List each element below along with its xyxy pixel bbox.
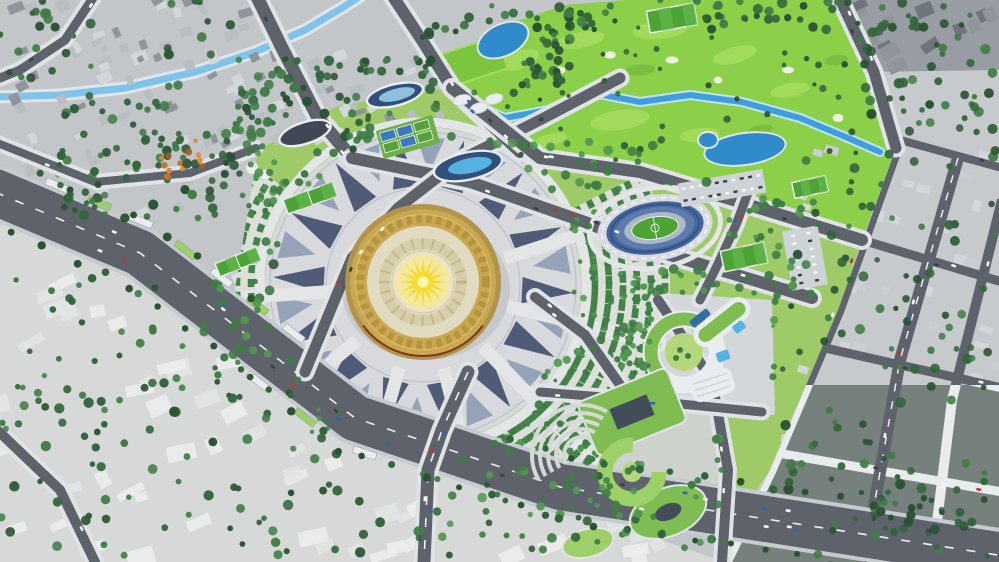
tree [553, 379, 557, 383]
boulevard-tree [667, 468, 674, 475]
tree [255, 150, 261, 156]
tree [493, 139, 502, 148]
tree [359, 530, 368, 539]
tree [362, 57, 369, 64]
tree [753, 235, 758, 240]
tree [577, 17, 587, 27]
tree [551, 32, 556, 37]
tree [146, 425, 154, 433]
tree [642, 328, 647, 333]
tree [950, 236, 960, 246]
tree [319, 487, 327, 495]
tree [383, 58, 389, 64]
tree [980, 478, 987, 485]
tree [6, 69, 12, 75]
tree [802, 156, 811, 165]
tree [501, 11, 510, 20]
tree [486, 471, 493, 478]
tree [508, 139, 517, 148]
tree [236, 504, 245, 513]
tree [825, 314, 832, 321]
tree [576, 515, 582, 521]
tree [256, 520, 262, 526]
boulevard-tree [266, 386, 272, 392]
tree [876, 507, 885, 516]
tree [396, 68, 404, 76]
tree [203, 131, 211, 139]
tree [268, 526, 277, 535]
tree [195, 152, 201, 158]
tree [240, 541, 246, 547]
tree [648, 141, 658, 151]
tree [286, 100, 293, 107]
tree [710, 282, 716, 288]
tree [852, 516, 857, 521]
tree [788, 281, 797, 290]
tree [707, 25, 716, 34]
tree [332, 485, 342, 495]
sand-bunker [604, 51, 616, 58]
tree [719, 467, 725, 473]
tree [251, 145, 257, 151]
tree [355, 119, 363, 127]
tree [240, 192, 246, 198]
tree [316, 407, 320, 411]
tree [335, 448, 342, 455]
tree [658, 267, 667, 276]
tree [611, 511, 617, 517]
tree [144, 106, 150, 112]
tree [793, 250, 803, 260]
tree [535, 400, 544, 409]
tree [574, 348, 582, 356]
tree [529, 141, 537, 149]
tree [988, 201, 994, 207]
tree [980, 44, 990, 54]
tree [652, 287, 662, 297]
tree [89, 100, 96, 107]
tree [633, 53, 637, 57]
tree [41, 441, 51, 451]
tree [947, 395, 956, 404]
tree [89, 198, 95, 204]
tree [569, 227, 573, 231]
tree [221, 129, 231, 139]
tree [602, 9, 609, 16]
tree [939, 44, 948, 53]
tree [249, 346, 257, 354]
tree [902, 295, 910, 303]
tree [235, 360, 240, 365]
tree [195, 215, 201, 221]
tree [630, 280, 636, 286]
tree [916, 483, 926, 493]
courtyard-tree [677, 347, 683, 353]
tree [712, 435, 721, 444]
tree [940, 3, 947, 10]
tree [585, 138, 593, 146]
tree [775, 243, 782, 250]
boulevard-tree [358, 453, 365, 460]
tree [130, 121, 136, 127]
tree [519, 81, 526, 88]
tree [274, 241, 281, 248]
tree [910, 157, 919, 166]
tree [727, 217, 733, 223]
tree [797, 16, 803, 22]
tree [326, 481, 332, 487]
tree [447, 520, 454, 527]
boulevard-tree [600, 461, 607, 468]
tree [254, 72, 262, 80]
tree [79, 210, 89, 220]
sand-bunker [665, 56, 678, 63]
tree [357, 66, 364, 73]
tree [944, 220, 954, 230]
tree [889, 215, 895, 221]
tree [386, 110, 392, 116]
boulevard-tree [543, 446, 549, 452]
tree [227, 525, 233, 531]
tree [220, 181, 228, 189]
tree [587, 497, 592, 502]
tree [86, 513, 92, 519]
tree [837, 462, 845, 470]
tree [113, 145, 120, 152]
tree [694, 477, 701, 484]
tree [538, 97, 542, 101]
tree [645, 301, 651, 307]
hedge-tree [640, 334, 644, 338]
tree [584, 183, 591, 190]
tree [236, 170, 243, 177]
tree [148, 379, 156, 387]
tree [849, 179, 854, 184]
tree [365, 123, 374, 132]
tree [983, 348, 992, 357]
tree [238, 89, 246, 97]
tree [169, 406, 179, 416]
tree [179, 384, 186, 391]
tree [460, 457, 467, 464]
tree [246, 203, 251, 208]
tree [71, 33, 76, 38]
tree [926, 118, 935, 127]
tree [693, 266, 702, 275]
tree [59, 148, 65, 154]
tree [136, 103, 143, 110]
tree [826, 407, 833, 414]
hedge-tree [619, 363, 625, 369]
tree [53, 497, 62, 506]
tree [425, 58, 434, 67]
tree [118, 328, 125, 335]
tree [310, 454, 319, 463]
boulevard-tree [37, 170, 44, 177]
tree [956, 124, 964, 132]
tree [269, 259, 279, 269]
tree [84, 200, 90, 206]
tree [601, 52, 606, 57]
tree [962, 459, 971, 468]
tree [249, 114, 255, 120]
tree [904, 517, 914, 527]
tree [486, 17, 493, 24]
tree [509, 89, 517, 97]
tree [151, 284, 158, 291]
tree [142, 135, 151, 144]
tree [606, 483, 613, 490]
tree [937, 548, 943, 554]
tree [754, 13, 760, 19]
hedge-tree [577, 445, 583, 451]
boulevard-tree [590, 523, 598, 531]
tree [917, 503, 923, 509]
tree [197, 157, 203, 163]
tree [217, 285, 225, 293]
tree [791, 276, 797, 282]
tree [642, 294, 649, 301]
tree [782, 50, 788, 56]
tree [548, 185, 556, 193]
tree [866, 109, 876, 119]
tree [377, 67, 386, 76]
tree [524, 165, 532, 173]
tree [248, 88, 256, 96]
tree [41, 403, 49, 411]
tree [564, 8, 574, 18]
tree [554, 2, 564, 12]
tree [988, 68, 998, 78]
tree [628, 319, 636, 327]
tree [859, 202, 867, 210]
tree [719, 19, 728, 28]
tree [61, 204, 68, 211]
tree [246, 150, 252, 156]
tree [579, 151, 585, 157]
tree [614, 356, 620, 362]
tree [855, 324, 865, 334]
tree [953, 486, 960, 493]
tree [26, 73, 35, 82]
tree [967, 12, 972, 17]
tree [204, 18, 211, 25]
tree [590, 162, 597, 169]
tree [919, 22, 928, 31]
tree [853, 150, 858, 155]
tree [874, 257, 880, 263]
tree [264, 80, 274, 90]
tree [273, 550, 282, 559]
tree [167, 0, 175, 8]
tree [966, 59, 974, 67]
tree [197, 32, 207, 42]
tree [714, 500, 722, 508]
tree [90, 167, 99, 176]
tree [173, 374, 181, 382]
tree [858, 271, 868, 281]
tree [608, 349, 614, 355]
tree [981, 384, 987, 390]
boulevard-tree [238, 366, 244, 372]
sand-bunker [782, 67, 794, 74]
tree [247, 125, 255, 133]
tree [20, 401, 29, 410]
tree [571, 533, 580, 542]
tree [771, 364, 777, 370]
tree [576, 159, 582, 165]
tree [280, 91, 286, 97]
tree [173, 80, 182, 89]
tree [846, 188, 853, 195]
tree [283, 500, 293, 510]
tree [356, 130, 363, 137]
tree [323, 72, 331, 80]
tree [847, 276, 853, 282]
tree [79, 319, 85, 325]
tree [895, 479, 905, 489]
boulevard-tree [939, 509, 945, 515]
tree [484, 482, 490, 488]
tree [808, 22, 818, 32]
tree [746, 275, 752, 281]
tree [581, 313, 585, 317]
tree [542, 39, 551, 48]
tree [876, 304, 885, 313]
tree [765, 6, 774, 15]
tree [810, 199, 817, 206]
tree [554, 359, 562, 367]
car [429, 508, 432, 513]
tree [772, 282, 777, 287]
tree [612, 18, 617, 23]
tree [177, 160, 183, 166]
tree [800, 2, 808, 10]
tree [152, 99, 160, 107]
tree [635, 158, 641, 164]
tree [855, 21, 860, 26]
hedge-tree [604, 317, 610, 323]
tree [694, 281, 699, 286]
tree [520, 466, 525, 471]
tree [659, 124, 665, 130]
boulevard-tree [555, 514, 563, 522]
tree [121, 552, 128, 559]
tree [502, 498, 508, 504]
tree [726, 231, 731, 236]
courtyard-tree [685, 353, 691, 359]
tree [723, 116, 730, 123]
tree [606, 294, 614, 302]
tree [3, 426, 9, 432]
tree [802, 260, 811, 269]
tree [846, 223, 851, 228]
tree [895, 397, 905, 407]
tree [560, 90, 566, 96]
tree [483, 508, 490, 515]
tree [788, 303, 794, 309]
tree [416, 535, 422, 541]
tree [859, 420, 866, 427]
tree [941, 101, 950, 110]
tree [619, 322, 629, 332]
tree [563, 356, 571, 364]
tree [413, 55, 419, 61]
tree [771, 324, 775, 328]
boulevard-tree [488, 491, 496, 499]
tree [262, 414, 270, 422]
tree [676, 271, 681, 276]
tree [176, 136, 184, 144]
tree [152, 129, 158, 135]
tree [888, 514, 894, 520]
tree [242, 332, 251, 341]
hedge-tree [510, 428, 517, 435]
tree [940, 19, 949, 28]
hedge-tree [592, 255, 596, 259]
tree [927, 382, 936, 391]
tree [56, 356, 62, 362]
tree [199, 163, 205, 169]
tree [827, 230, 837, 240]
tree [650, 514, 656, 520]
tree [572, 290, 577, 295]
tree [423, 68, 429, 74]
tree [575, 178, 584, 187]
tree [867, 27, 877, 37]
tree [301, 170, 309, 178]
tree [63, 385, 71, 393]
tree [607, 3, 614, 10]
tree [668, 180, 674, 186]
tree [240, 316, 249, 325]
tree [544, 24, 551, 31]
tree [123, 174, 130, 181]
tree [90, 461, 96, 467]
tree [92, 204, 98, 210]
tree [624, 349, 632, 357]
boulevard-tree [518, 502, 525, 509]
tree [52, 541, 62, 551]
tree [336, 62, 343, 69]
tree [446, 552, 453, 559]
scene-canvas [0, 0, 999, 562]
tree [237, 394, 243, 400]
boulevard-tree [125, 285, 133, 293]
tree [269, 197, 277, 205]
tree [242, 434, 252, 444]
tree [807, 289, 815, 297]
tree [702, 177, 712, 187]
tree [814, 221, 820, 227]
tree [654, 46, 660, 52]
boulevard-tree [388, 461, 395, 468]
tree [970, 102, 979, 111]
tree [518, 141, 527, 150]
tree [705, 82, 711, 88]
tree [186, 512, 192, 518]
tree [425, 84, 435, 94]
tree [910, 364, 919, 373]
tree [985, 553, 990, 558]
tree [636, 25, 640, 29]
tree [220, 353, 228, 361]
tree [95, 181, 102, 188]
tree [453, 28, 459, 34]
tree [161, 524, 168, 531]
tree [300, 85, 306, 91]
tree [773, 200, 781, 208]
